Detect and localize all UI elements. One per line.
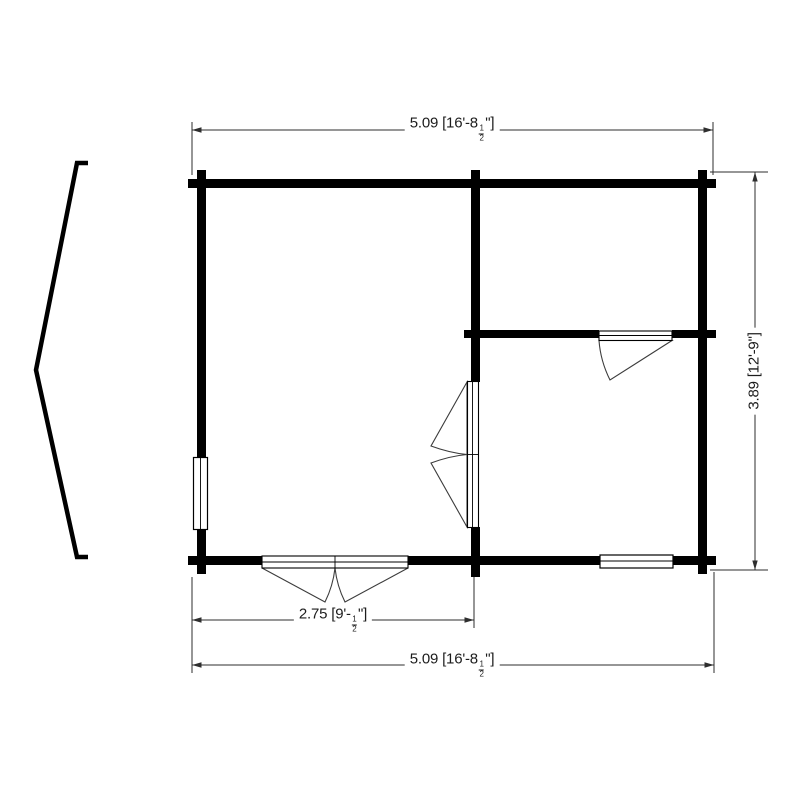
double-door-partition-swing-top bbox=[431, 382, 467, 455]
floor-plan-svg bbox=[0, 0, 800, 800]
dimension-right-arrow-bottom bbox=[752, 561, 757, 571]
double-door-bottom-swing-left bbox=[262, 568, 335, 602]
single-door-interior bbox=[599, 331, 672, 380]
wall-partition-upper bbox=[471, 170, 480, 382]
roof-gable-profile bbox=[36, 163, 88, 557]
dimension-bottom-inner-arrow-right bbox=[465, 617, 475, 622]
imperial-open: [16'-8 bbox=[438, 651, 478, 668]
double-door-partition-swing-bottom bbox=[431, 455, 467, 528]
wall-interior-right bbox=[672, 330, 716, 338]
imperial-open: [16'-8 bbox=[438, 115, 478, 132]
single-door-interior-swing bbox=[599, 341, 672, 381]
double-door-bottom bbox=[262, 556, 408, 602]
fraction-half: 12 bbox=[479, 125, 484, 143]
dimension-label-top-width: 5.09 [16'-812"] bbox=[405, 116, 500, 143]
imperial-value: [12'-9"] bbox=[746, 332, 763, 381]
double-door-partition bbox=[431, 382, 479, 528]
metric-value: 3.89 bbox=[746, 381, 763, 409]
metric-value: 5.09 bbox=[410, 651, 438, 668]
dimension-right-arrow-top bbox=[752, 172, 757, 182]
window-left bbox=[194, 458, 208, 530]
dimension-bottom-outer-arrow-left bbox=[192, 662, 202, 667]
walls bbox=[188, 170, 716, 577]
double-door-bottom-swing-right bbox=[335, 568, 408, 602]
window-bottom-right bbox=[600, 555, 673, 568]
dimension-label-right-height: 3.89 [12'-9"] bbox=[747, 327, 762, 414]
wall-top bbox=[188, 179, 716, 188]
fraction-half: 12 bbox=[479, 661, 484, 679]
dimension-bottom-outer-arrow-right bbox=[705, 662, 715, 667]
dimension-top-arrow-left bbox=[192, 127, 202, 132]
floor-plan-drawing: 5.09 [16'-812"] 3.89 [12'-9"] 2.75 [9'-1… bbox=[0, 0, 800, 800]
wall-interior-left bbox=[464, 330, 599, 338]
dimension-top-arrow-right bbox=[704, 127, 714, 132]
metric-value: 5.09 bbox=[410, 115, 438, 132]
imperial-close: "] bbox=[485, 651, 494, 668]
dimension-label-bottom-left-width: 2.75 [9'-12"] bbox=[294, 607, 372, 634]
metric-value: 2.75 bbox=[299, 606, 327, 623]
imperial-open: [9'- bbox=[327, 606, 351, 623]
imperial-close: "] bbox=[485, 115, 494, 132]
wall-partition-lower bbox=[471, 527, 480, 577]
window-bottom-right-frame bbox=[600, 555, 673, 568]
dimension-bottom-inner-arrow-left bbox=[192, 617, 202, 622]
imperial-close: "] bbox=[358, 606, 367, 623]
fraction-half: 12 bbox=[352, 616, 357, 634]
dimension-label-bottom-total-width: 5.09 [16'-812"] bbox=[405, 652, 500, 679]
wall-right bbox=[698, 170, 707, 574]
